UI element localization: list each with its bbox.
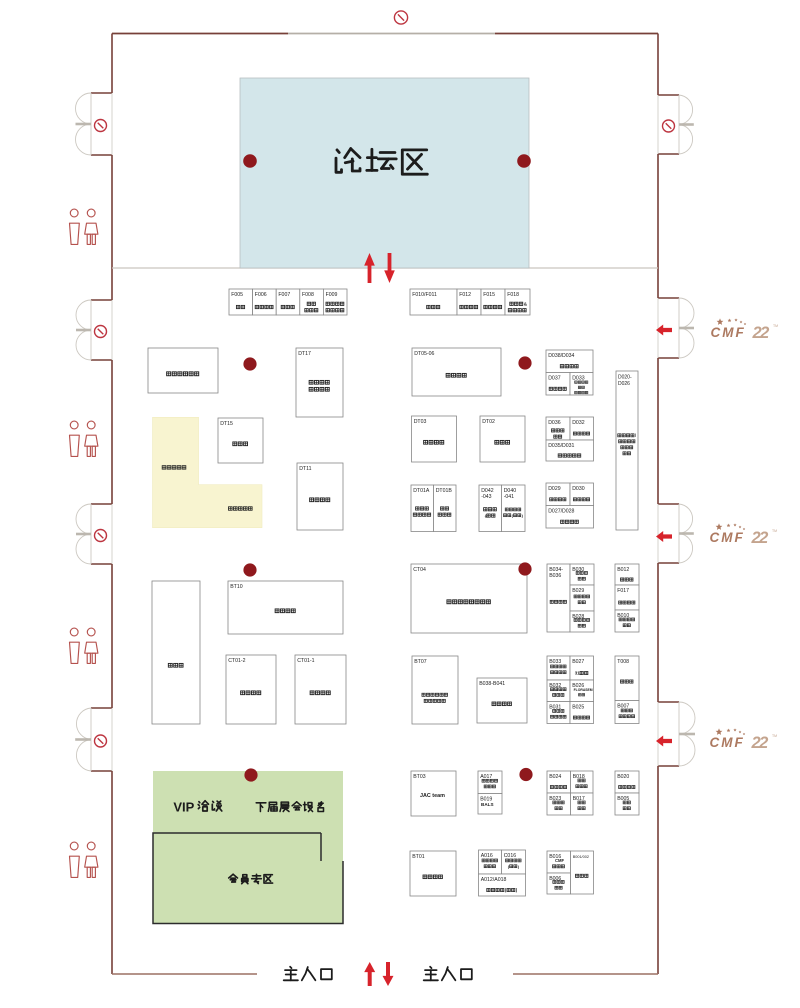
svg-text:D020-: D020- xyxy=(618,375,632,381)
svg-text:B034-: B034- xyxy=(549,567,563,573)
svg-text:F015: F015 xyxy=(483,292,495,298)
svg-text:D036: D036 xyxy=(548,420,561,426)
svg-text:DT01B: DT01B xyxy=(436,488,453,494)
svg-text:DT15: DT15 xyxy=(220,421,233,427)
svg-text:F010/F011: F010/F011 xyxy=(412,292,437,298)
svg-text:22: 22 xyxy=(751,529,769,547)
svg-text:DT01A: DT01A xyxy=(413,488,430,494)
svg-text:DT17: DT17 xyxy=(298,351,311,357)
svg-text:CT01-2: CT01-2 xyxy=(228,658,245,664)
svg-text:F018: F018 xyxy=(507,292,519,298)
svg-text:D030: D030 xyxy=(572,486,585,492)
svg-text:TM: TM xyxy=(772,529,777,533)
svg-text:DT05-06: DT05-06 xyxy=(414,351,434,357)
svg-text:VIP: VIP xyxy=(173,800,194,815)
svg-text:D040: D040 xyxy=(504,488,517,494)
svg-text:F006: F006 xyxy=(255,292,267,298)
svg-text:22: 22 xyxy=(752,324,770,342)
svg-text:C016: C016 xyxy=(504,853,517,859)
svg-text:DT03: DT03 xyxy=(414,419,427,425)
svg-text:D033: D033 xyxy=(572,375,585,381)
svg-text:A016: A016 xyxy=(481,853,493,859)
svg-text:B007: B007 xyxy=(617,703,629,709)
svg-text:22: 22 xyxy=(751,734,769,752)
svg-text:B036: B036 xyxy=(549,573,561,579)
svg-text:CMF: CMF xyxy=(555,858,565,863)
svg-text:TM: TM xyxy=(773,324,778,328)
svg-text:DT02: DT02 xyxy=(482,419,495,425)
svg-text:F012: F012 xyxy=(459,292,471,298)
svg-text:CMF: CMF xyxy=(710,735,745,750)
svg-text:B033: B033 xyxy=(549,659,561,665)
svg-text:D032: D032 xyxy=(572,420,585,426)
svg-text:F008: F008 xyxy=(302,292,314,298)
svg-text:B020: B020 xyxy=(617,774,629,780)
svg-text:D042: D042 xyxy=(481,488,494,494)
svg-text:B025: B025 xyxy=(572,704,584,710)
svg-text:BALS: BALS xyxy=(481,802,494,807)
svg-text:B038-B041: B038-B041 xyxy=(479,681,505,687)
svg-text:T008: T008 xyxy=(617,659,629,665)
svg-text:B006: B006 xyxy=(549,876,561,882)
svg-text:FLORASEM: FLORASEM xyxy=(574,688,593,692)
svg-text:F007: F007 xyxy=(278,292,290,298)
svg-text:CT01-1: CT01-1 xyxy=(297,658,314,664)
svg-text:A017: A017 xyxy=(480,774,492,780)
svg-text:CMF: CMF xyxy=(711,325,746,340)
svg-text:F009: F009 xyxy=(326,292,338,298)
svg-text:D038/D034: D038/D034 xyxy=(548,353,574,359)
svg-text:BT03: BT03 xyxy=(413,774,426,780)
svg-text:-043: -043 xyxy=(481,494,491,500)
svg-text:D029: D029 xyxy=(548,486,561,492)
svg-text:BT07: BT07 xyxy=(414,659,427,665)
svg-text:F005: F005 xyxy=(231,292,243,298)
svg-text:D037: D037 xyxy=(548,375,561,381)
svg-text:TM: TM xyxy=(772,734,777,738)
svg-text:D035/D031: D035/D031 xyxy=(548,443,574,449)
svg-text:B012: B012 xyxy=(617,567,629,573)
svg-text:DT11: DT11 xyxy=(299,466,311,472)
svg-text:BT10: BT10 xyxy=(230,584,243,590)
svg-text:B024: B024 xyxy=(549,774,561,780)
svg-text:F017: F017 xyxy=(617,588,629,594)
svg-text:D027/D028: D027/D028 xyxy=(548,508,574,514)
svg-text:A012/A018: A012/A018 xyxy=(481,877,507,883)
svg-text:JAC team: JAC team xyxy=(420,793,445,799)
svg-text:D026: D026 xyxy=(618,381,630,387)
svg-text:B001/002: B001/002 xyxy=(573,855,589,859)
svg-text:BT01: BT01 xyxy=(412,854,425,860)
svg-text:CT04: CT04 xyxy=(413,567,426,573)
svg-text:CMF: CMF xyxy=(710,530,745,545)
svg-text:B030: B030 xyxy=(572,567,584,573)
svg-text:-041: -041 xyxy=(504,494,514,500)
svg-text:B027: B027 xyxy=(572,659,584,665)
svg-text:31: 31 xyxy=(575,671,580,676)
svg-text:B029: B029 xyxy=(572,588,584,594)
